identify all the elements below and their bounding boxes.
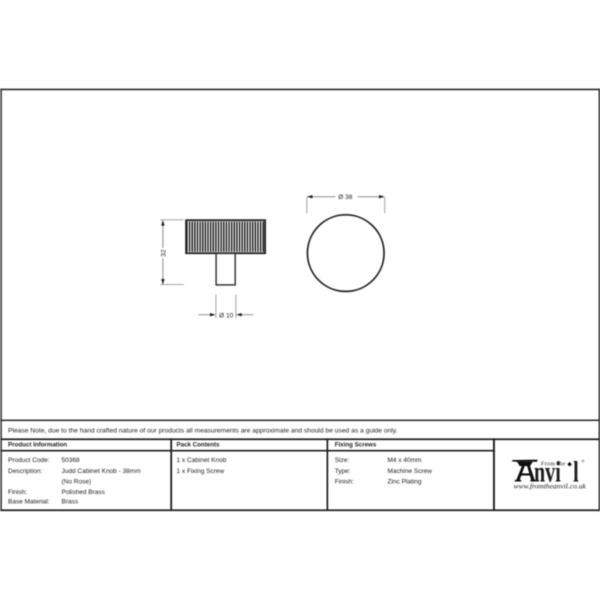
svg-text:1 x Cabinet Knob: 1 x Cabinet Knob [177, 457, 227, 464]
svg-text:Judd Cabinet Knob - 38mm: Judd Cabinet Knob - 38mm [62, 468, 141, 475]
svg-text:Fixing Screws: Fixing Screws [335, 442, 377, 449]
svg-text:Ø 10: Ø 10 [219, 312, 234, 319]
svg-text:www.fromtheanvil.co.uk: www.fromtheanvil.co.uk [514, 481, 587, 490]
svg-text:Base Material:: Base Material: [8, 499, 50, 506]
svg-text:From the: From the [541, 462, 566, 468]
svg-text:®: ® [581, 458, 585, 463]
svg-text:Ø 38: Ø 38 [338, 194, 353, 201]
svg-text:Finish:: Finish: [8, 489, 27, 496]
svg-text:Zinc Plating: Zinc Plating [388, 478, 422, 485]
svg-text:1 x Fixing Screw: 1 x Fixing Screw [177, 468, 225, 475]
svg-text:Size:: Size: [335, 457, 350, 464]
svg-text:(No Rose): (No Rose) [62, 478, 92, 485]
svg-text:Pack Contents: Pack Contents [177, 442, 221, 449]
svg-text:Brass: Brass [62, 499, 79, 506]
svg-text:Polished Brass: Polished Brass [62, 489, 106, 496]
svg-text:Product Code:: Product Code: [8, 457, 50, 464]
svg-text:Description:: Description: [8, 468, 43, 475]
svg-text:Machine Screw: Machine Screw [388, 468, 433, 475]
svg-text:Please Note, due to the hand c: Please Note, due to the hand crafted nat… [8, 427, 398, 434]
svg-text:Product Information: Product Information [8, 442, 67, 449]
svg-text:32: 32 [160, 249, 167, 257]
svg-text:Finish:: Finish: [335, 478, 354, 485]
svg-text:Type:: Type: [335, 468, 351, 475]
svg-text:50368: 50368 [62, 457, 80, 464]
svg-text:M4 x 40mm: M4 x 40mm [388, 457, 422, 464]
